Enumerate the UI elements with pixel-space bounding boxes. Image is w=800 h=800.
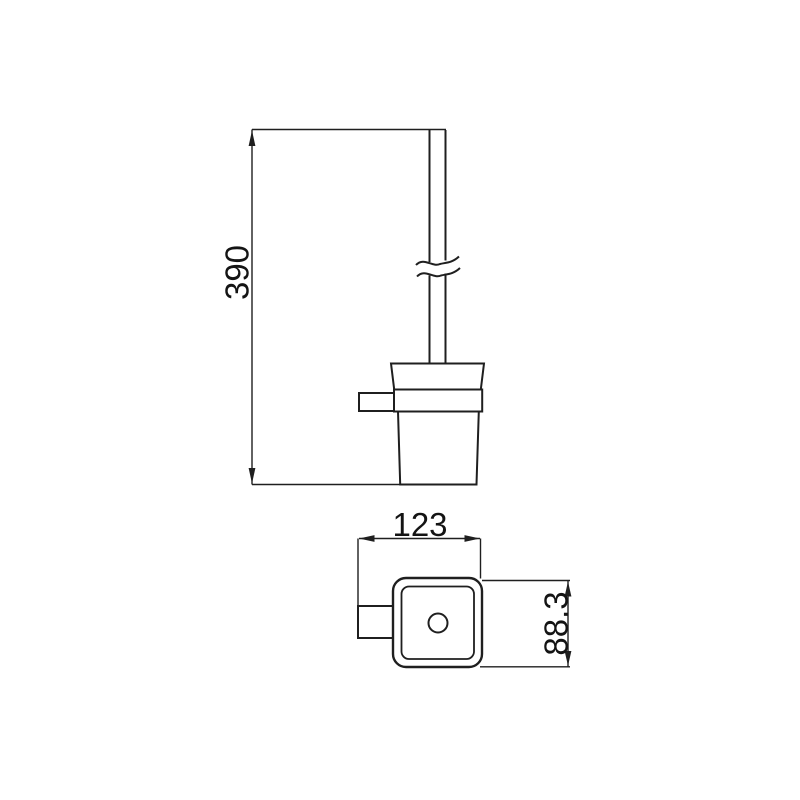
top-view	[358, 578, 482, 667]
cup-body	[398, 412, 479, 485]
wall-bracket-front	[359, 393, 395, 411]
mounting-band	[394, 390, 482, 412]
arrowhead-left-icon	[359, 535, 375, 542]
break-symbol-upper-squiggle	[416, 257, 459, 266]
arrowhead-down-icon	[249, 468, 256, 484]
width-dimension-label: 123	[392, 506, 447, 543]
arrowhead-up-icon	[249, 131, 256, 147]
front-view	[359, 130, 484, 485]
toilet-brush-holder-drawing: 390 123 88.3	[0, 0, 800, 800]
holder-rim	[391, 364, 484, 390]
depth-dimension-label: 88.3	[538, 591, 575, 655]
arrowhead-right-icon	[465, 535, 481, 542]
wall-bracket-plan	[358, 606, 394, 638]
height-dimension-label: 390	[219, 245, 256, 300]
break-symbol-lower-squiggle	[417, 268, 460, 277]
technical-drawing-canvas: 390 123 88.3	[0, 0, 800, 800]
center-hole	[429, 614, 448, 633]
